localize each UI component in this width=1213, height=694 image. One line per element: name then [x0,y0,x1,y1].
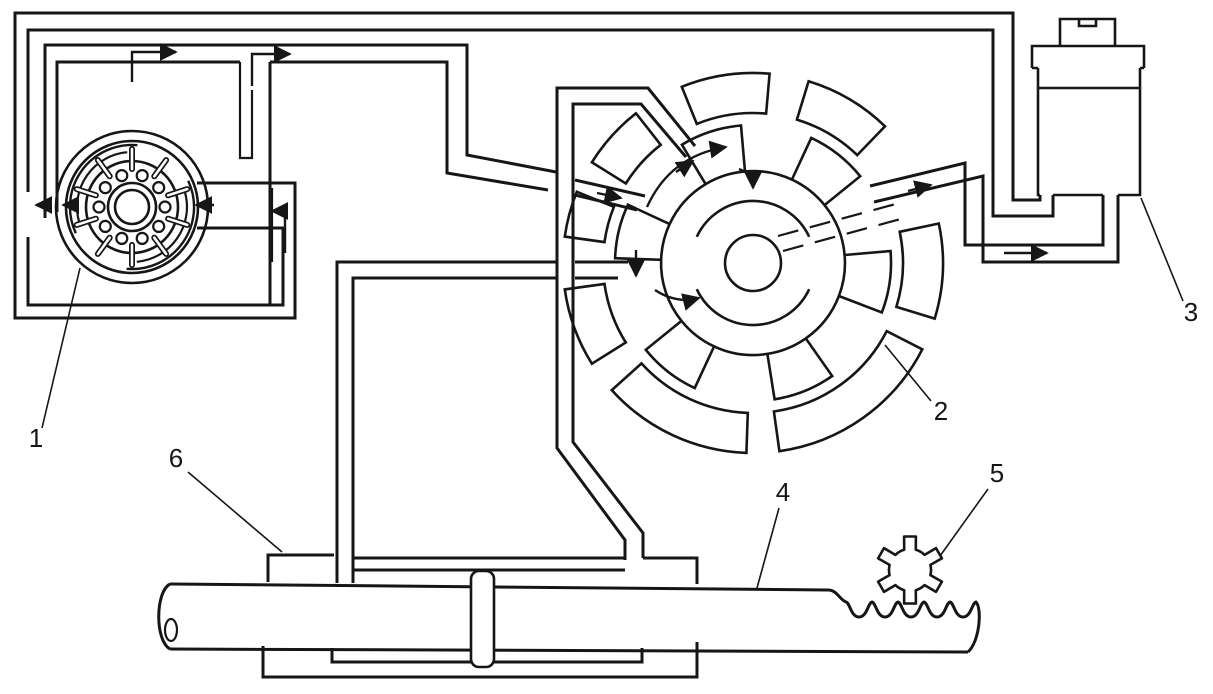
callout-label: 4 [776,477,790,507]
valve-rotor-arc [661,260,681,321]
pump-shaft-bore [115,190,149,224]
callout-leader [42,268,80,428]
vane-pump [56,131,208,283]
pump-roller [116,170,127,181]
callout-3: 3 [1141,198,1198,327]
valve-to-right-chamber-pipe [557,88,695,560]
pump-roller [137,170,148,181]
valve-outer-segment [682,73,770,124]
flow-arrow-discharge-top-1 [132,52,176,82]
callout-label: 6 [169,443,183,473]
pump-roller [94,202,105,213]
pipe-wall [874,176,1118,262]
valve-spool-land [682,126,745,185]
callout-label: 3 [1184,297,1198,327]
callout-label: 2 [934,396,948,426]
pump-roller [100,221,111,232]
rack-left-end-detail [165,619,177,641]
valve-outer-segment [896,224,943,319]
valve-center-bore [725,235,781,291]
callout-6: 6 [169,443,282,552]
hidden-passage-dashed-line [783,217,908,251]
callout-leader [757,508,779,588]
pump-roller [153,182,164,193]
valve-spool-land [615,205,670,260]
pump-roller [116,233,127,244]
fluid-reservoir [1032,19,1144,195]
callout-label: 5 [990,458,1004,488]
steering-rack [159,584,980,652]
power-steering-schematic-page: 1 2 3 4 5 6 [0,0,1213,694]
power-steering-diagram: 1 2 3 4 5 6 [0,0,1213,694]
cylinder-right-end-block [643,558,697,584]
reservoir-cap [1060,19,1115,46]
valve-rotor-arc [714,346,767,355]
valve-outer-segment [774,331,922,451]
valve-rotor-arc [670,184,706,224]
valve-to-left-chamber-pipe [337,262,628,583]
pipe-wall [270,62,548,190]
valve-spool-land [839,251,891,313]
pump-roller [137,233,148,244]
callout-leader [188,472,282,552]
cylinder-left-end-block [268,555,334,582]
valve-outer-segment [592,113,661,183]
valve-rotor-arc [806,296,839,338]
flow-arrow-valve-rotation-3 [655,290,699,300]
pinion-gear [878,537,942,604]
valve-inner-arc [697,289,809,325]
valve-spool-land [767,338,832,399]
callout-label: 1 [29,423,43,453]
reservoir-flange [1032,46,1144,68]
callout-1: 1 [29,268,80,453]
pipe-wall [575,180,645,196]
pipe-wall [337,262,557,583]
pump-generated [70,145,194,269]
pipe-wall [557,88,695,560]
callout-leader [1141,198,1183,301]
callout-leader [940,489,988,556]
valve-outer-segment [612,363,748,453]
pump-rotor [86,161,178,253]
flow-arrow-valve-inlet [597,193,621,198]
pipe-wall [240,62,252,158]
pump-roller [100,182,111,193]
pump-roller [160,202,171,213]
cylinder-piston [471,571,494,667]
valve-rotor-arc [825,205,845,255]
rack-bottom-edge [170,649,968,652]
valve-outer-segment [797,81,885,155]
pipe-wall [870,163,1103,245]
rack-top-edge [170,584,828,590]
pump-roller [153,221,164,232]
callout-5: 5 [940,458,1004,556]
pipe-wall [353,278,557,583]
callout-4: 4 [757,477,790,588]
